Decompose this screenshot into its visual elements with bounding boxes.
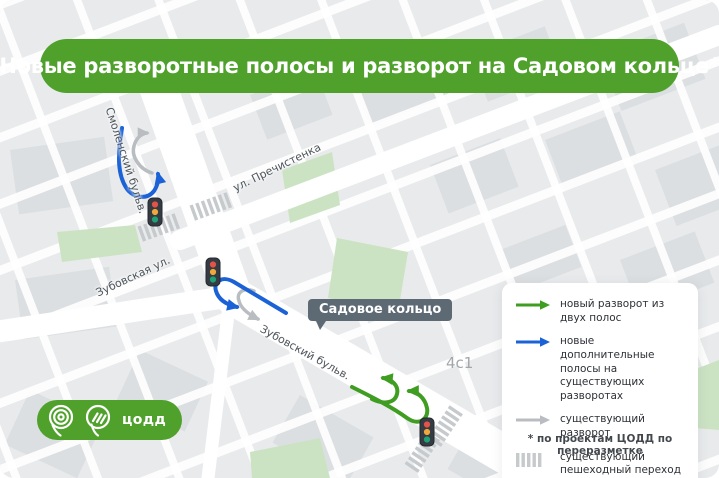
building-number-label: 4с1 [446, 354, 473, 372]
traffic-light-icon [420, 418, 434, 446]
codd-rings-pin-icon [45, 402, 77, 438]
traffic-light-icon [148, 198, 162, 226]
green-arrow-icon [515, 299, 551, 311]
title-banner: Новые разворотные полосы и разворот на С… [40, 39, 679, 93]
gray-arrow-icon [515, 414, 551, 426]
codd-logo: цодд [37, 400, 182, 440]
page-title: Новые разворотные полосы и разворот на С… [0, 54, 719, 78]
infographic-root: Новые разворотные полосы и разворот на С… [0, 0, 719, 478]
codd-logo-text: цодд [122, 412, 166, 428]
legend-item-new-uturn: новый разворот из двух полос [515, 298, 685, 325]
blue-arrow-icon [515, 336, 551, 348]
legend-item-label: новый разворот из двух полос [560, 298, 685, 325]
legend-item-new-lanes: новые дополнительные полосы на существую… [515, 335, 685, 403]
footnote: * по проектам ЦОДД по переразметке [500, 433, 700, 457]
sadovoe-koltso-tooltip: Садовое кольцо [308, 299, 452, 321]
codd-slashes-pin-icon [82, 402, 114, 438]
traffic-light-icon [206, 258, 220, 286]
legend-item-label: новые дополнительные полосы на существую… [560, 335, 685, 403]
